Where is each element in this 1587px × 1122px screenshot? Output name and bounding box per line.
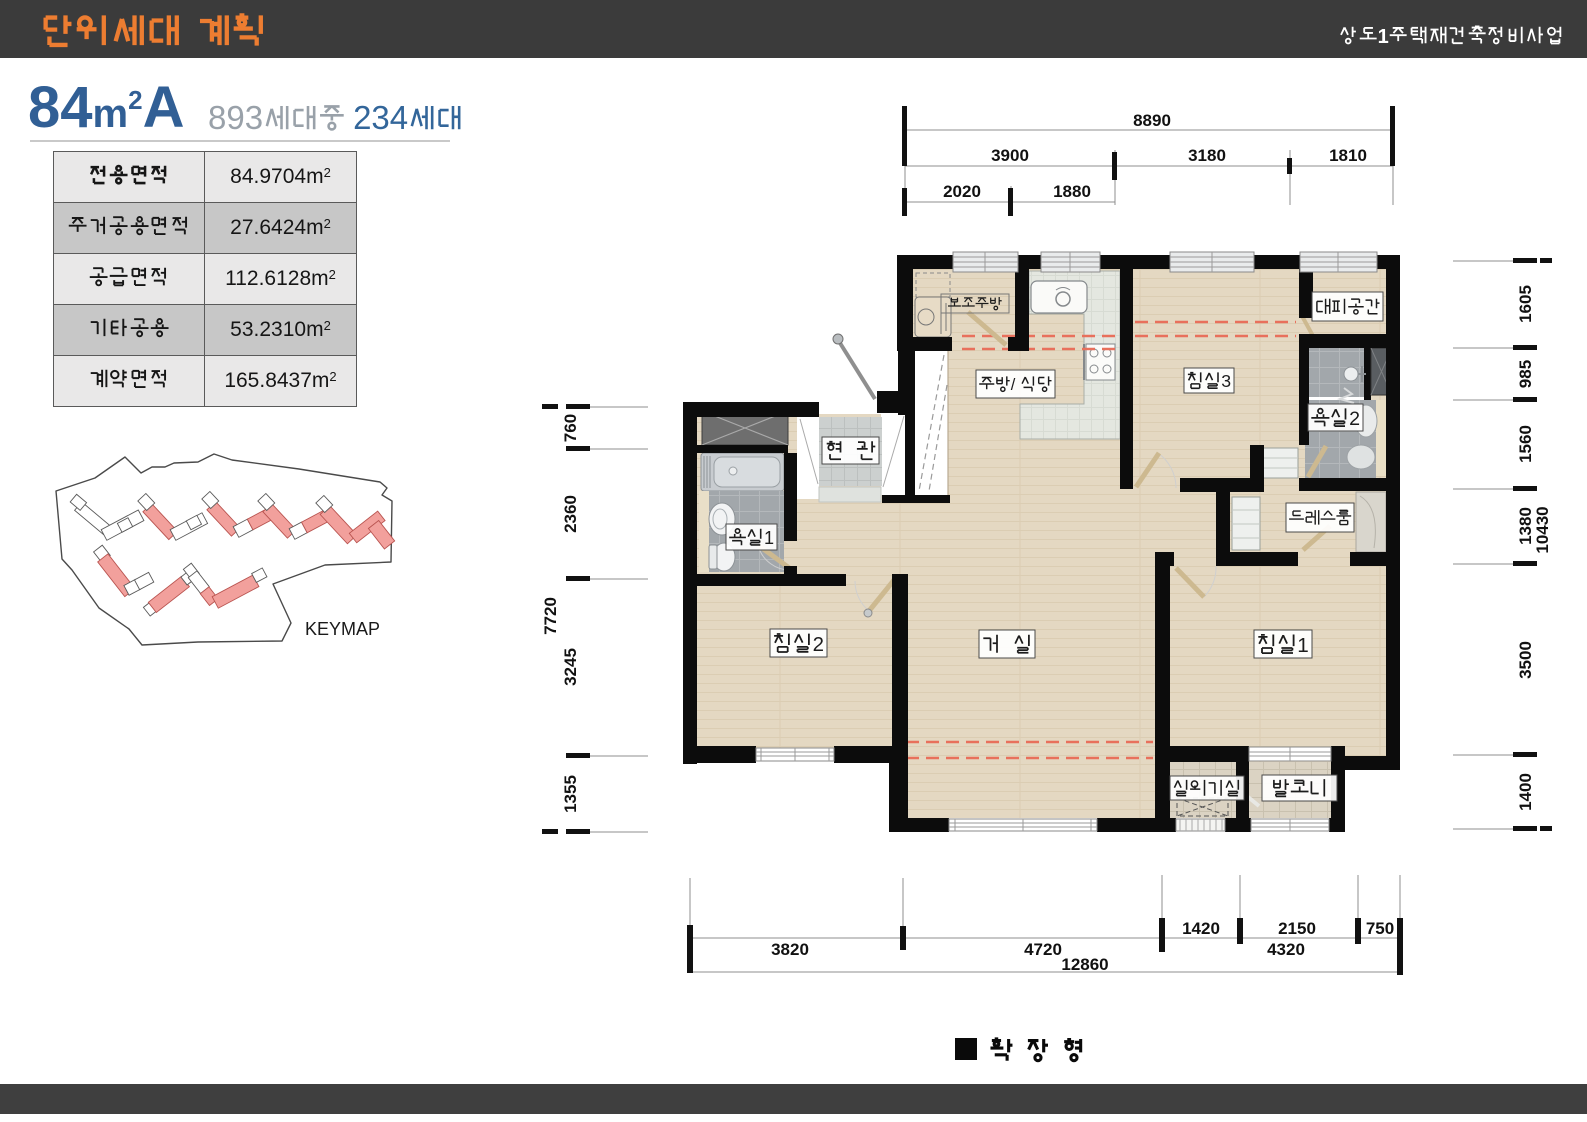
- svg-text:3820: 3820: [771, 940, 809, 959]
- svg-text:2360: 2360: [561, 495, 580, 533]
- svg-text:7720: 7720: [541, 597, 560, 635]
- svg-text:1605: 1605: [1516, 285, 1535, 323]
- svg-text:2: 2: [1349, 408, 1360, 430]
- svg-text:4720: 4720: [1024, 940, 1062, 959]
- svg-text:2: 2: [813, 633, 824, 656]
- svg-text:1400: 1400: [1516, 773, 1535, 811]
- svg-text:1355: 1355: [561, 775, 580, 813]
- svg-text:1: 1: [1297, 634, 1309, 657]
- svg-text:10430: 10430: [1533, 506, 1552, 553]
- svg-text:1810: 1810: [1329, 146, 1367, 165]
- svg-text:3500: 3500: [1516, 641, 1535, 679]
- svg-text:1880: 1880: [1053, 182, 1091, 201]
- svg-text:12860: 12860: [1061, 955, 1108, 974]
- svg-text:1560: 1560: [1516, 425, 1535, 463]
- svg-text:/: /: [1011, 376, 1016, 394]
- svg-text:3245: 3245: [561, 648, 580, 686]
- svg-text:760: 760: [561, 414, 580, 442]
- svg-text:2020: 2020: [943, 182, 981, 201]
- svg-text:3900: 3900: [991, 146, 1029, 165]
- svg-text:KEYMAP: KEYMAP: [305, 619, 380, 639]
- svg-text:1420: 1420: [1182, 919, 1220, 938]
- svg-text:3180: 3180: [1188, 146, 1226, 165]
- svg-text:1: 1: [764, 528, 774, 548]
- svg-text:750: 750: [1366, 919, 1394, 938]
- svg-text:4320: 4320: [1267, 940, 1305, 959]
- svg-text:2150: 2150: [1278, 919, 1316, 938]
- svg-text:8890: 8890: [1133, 111, 1171, 130]
- svg-text:985: 985: [1516, 360, 1535, 388]
- svg-text:3: 3: [1221, 371, 1231, 391]
